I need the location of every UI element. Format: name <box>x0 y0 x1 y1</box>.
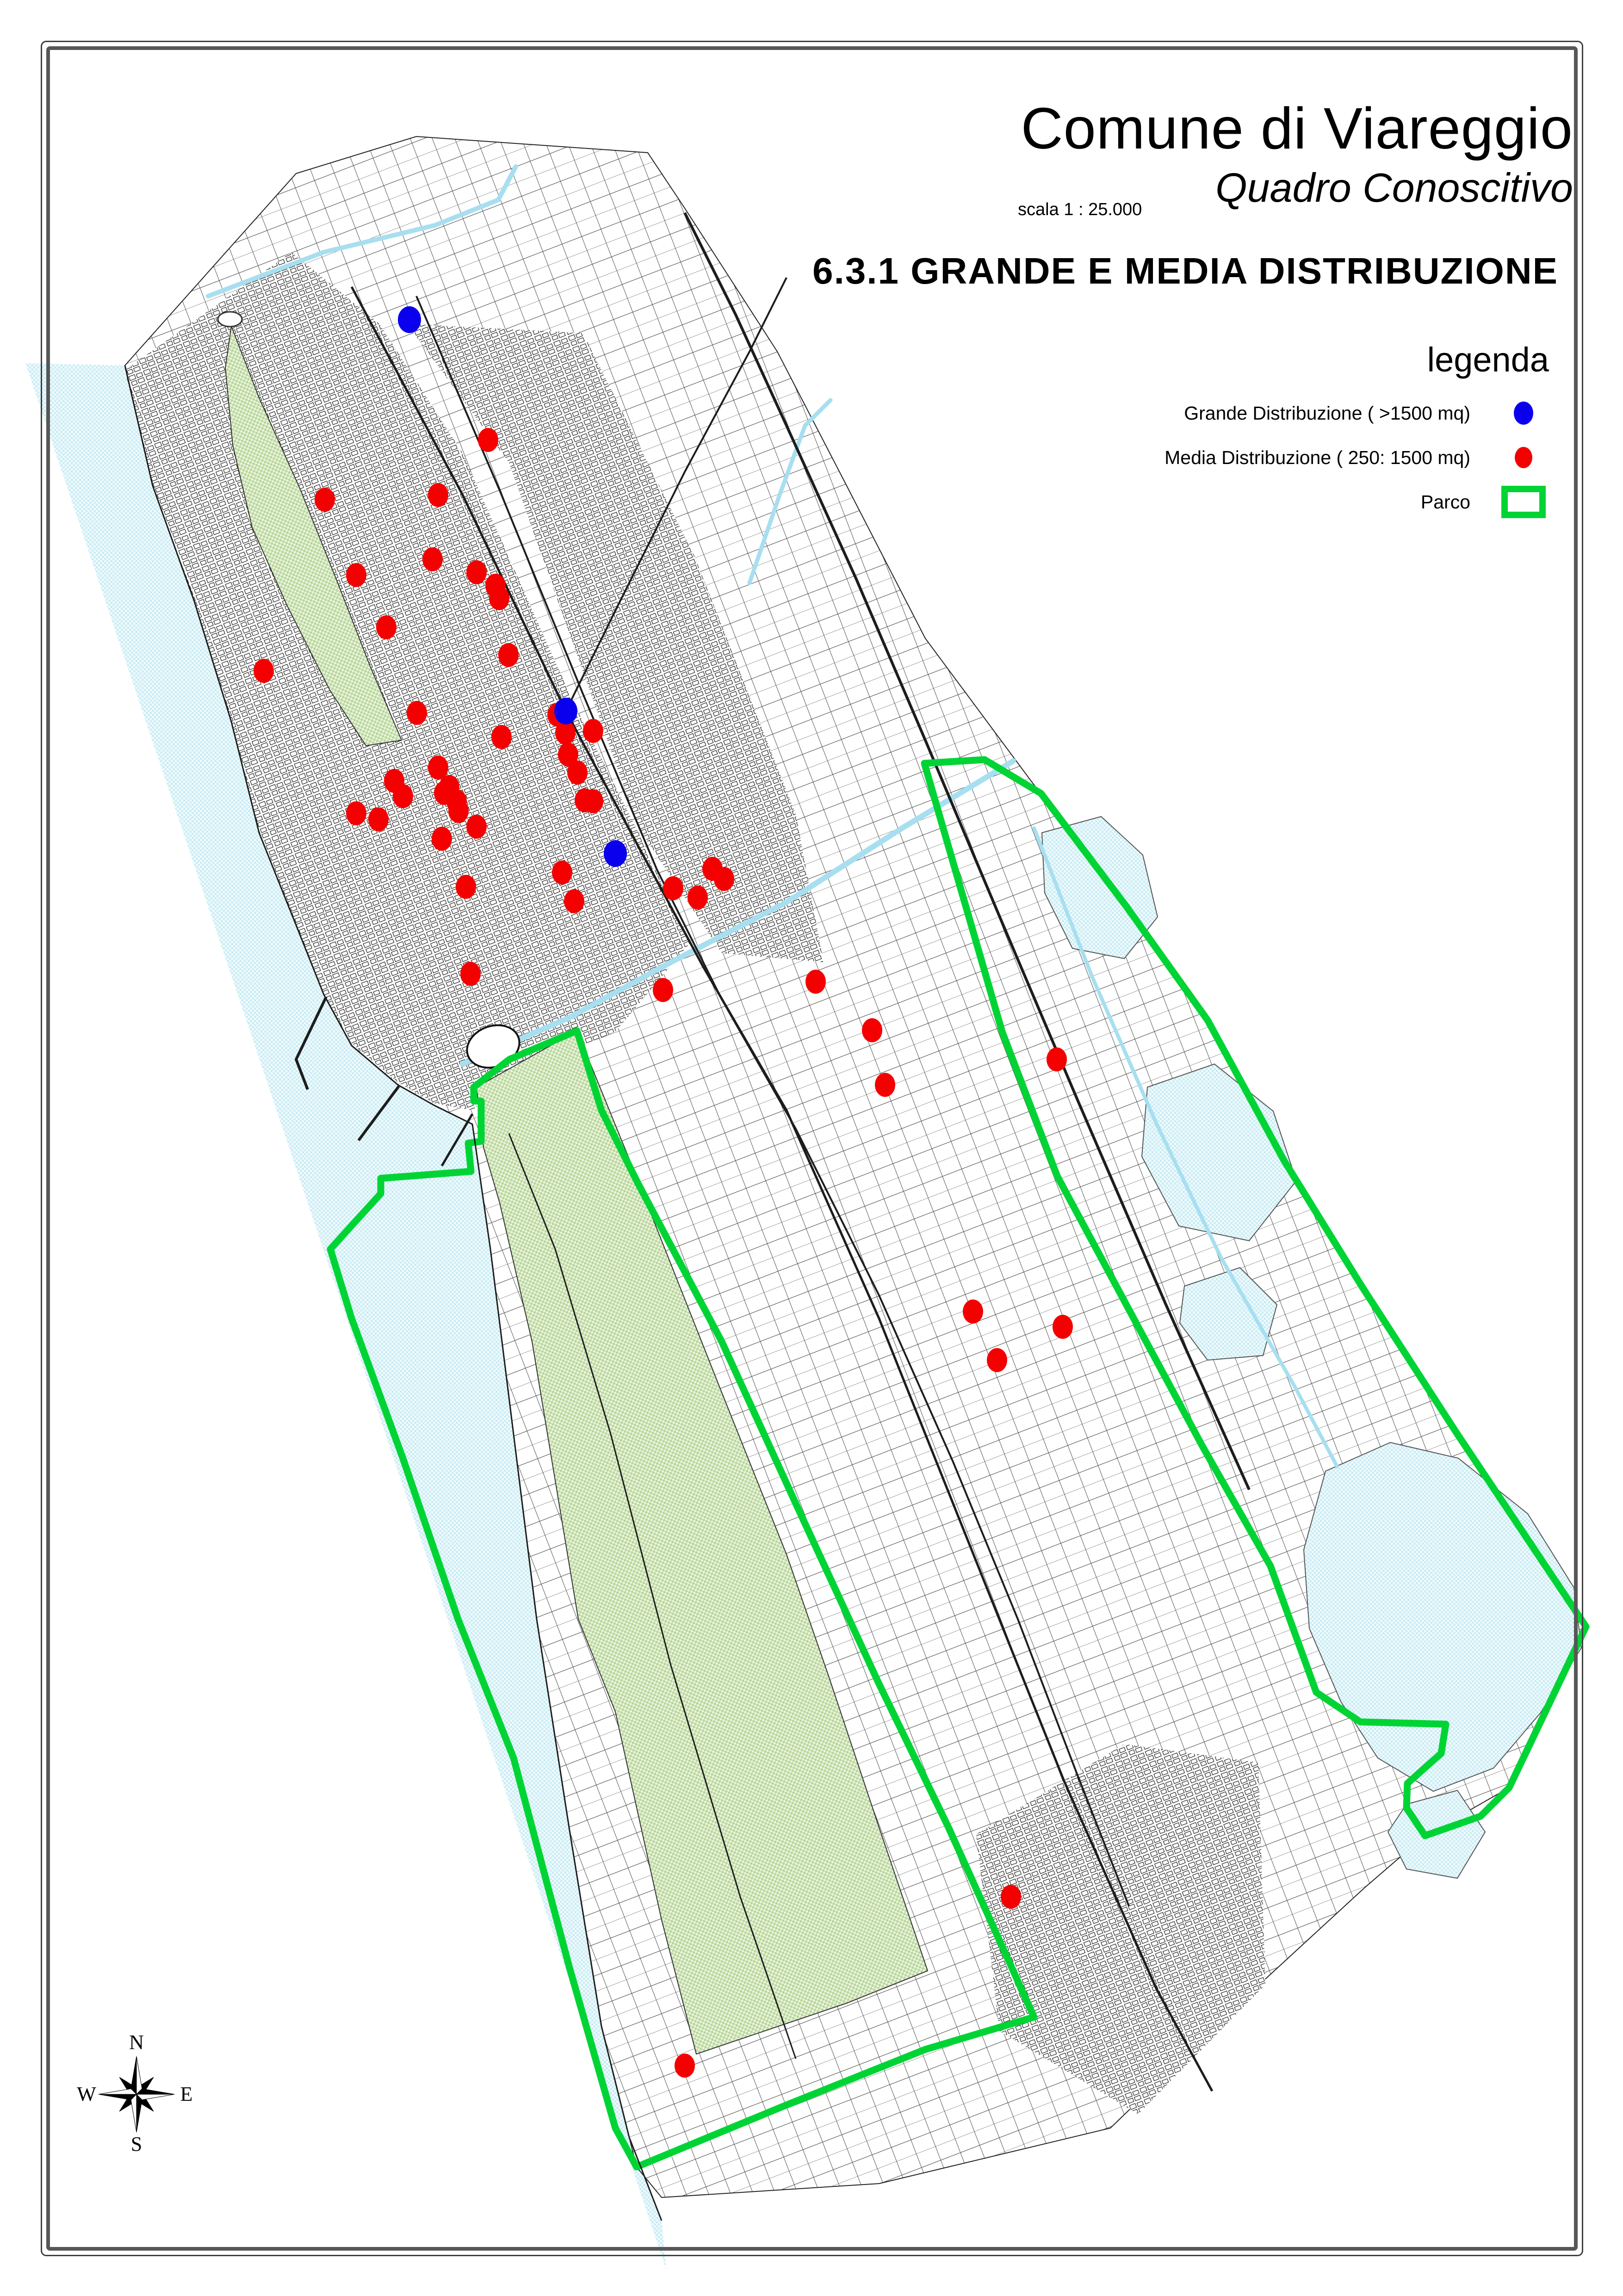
compass-rose: N E S W <box>74 2033 199 2154</box>
section-title: 6.3.1 GRANDE E MEDIA DISTRIBUZIONE <box>812 250 1558 292</box>
legend-label-parco: Parco <box>1421 491 1470 513</box>
header: Comune di Viareggio Quadro Conoscitivo <box>1021 98 1573 208</box>
legend-label-grande: Grande Distribuzione ( >1500 mq) <box>1184 402 1470 424</box>
compass-star-icon <box>99 2056 174 2132</box>
grande-dot-icon <box>1514 402 1533 425</box>
page-title: Comune di Viareggio <box>1021 98 1573 159</box>
compass-north-label: N <box>129 2033 144 2054</box>
legend-label-media: Media Distribuzione ( 250: 1500 mq) <box>1165 447 1470 469</box>
legend-item-grande: Grande Distribuzione ( >1500 mq) <box>1165 397 1549 429</box>
scale-label: scala 1 : 25.000 <box>1018 200 1142 220</box>
map-sheet: Comune di Viareggio Quadro Conoscitivo s… <box>0 0 1623 2296</box>
compass-south-label: S <box>131 2133 142 2154</box>
legend-item-media: Media Distribuzione ( 250: 1500 mq) <box>1165 441 1549 474</box>
legend-title: legenda <box>1165 340 1549 379</box>
parco-rect-icon <box>1505 489 1542 515</box>
grande-dot-swatch <box>1498 397 1549 429</box>
parco-swatch <box>1498 486 1549 518</box>
compass-east-label: E <box>180 2083 193 2105</box>
compass-west-label: W <box>77 2083 96 2105</box>
media-dot-icon <box>1515 447 1532 468</box>
legend-item-parco: Parco <box>1165 486 1549 518</box>
media-dot-swatch <box>1498 441 1549 474</box>
legend: legenda Grande Distribuzione ( >1500 mq)… <box>1165 340 1549 530</box>
